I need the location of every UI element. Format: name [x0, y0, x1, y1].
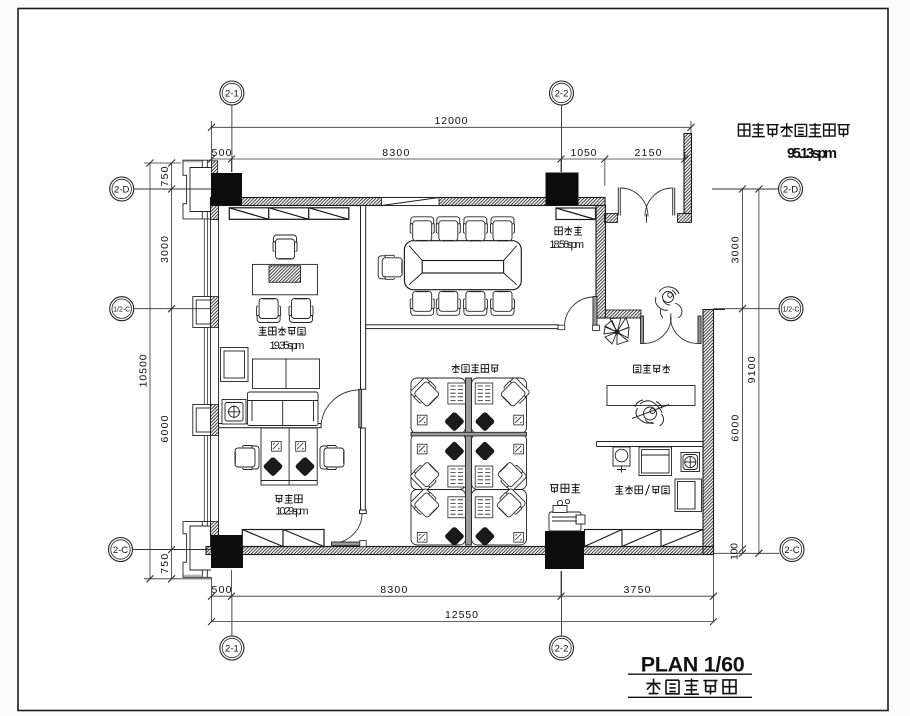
svg-text:9100: 9100: [746, 356, 758, 383]
svg-text:1/2-C: 1/2-C: [113, 307, 130, 314]
svg-text:2-C: 2-C: [784, 545, 799, 556]
svg-text:750: 750: [159, 166, 171, 186]
svg-text:3750: 3750: [624, 584, 651, 596]
svg-text:PLAN 1/60: PLAN 1/60: [641, 653, 745, 677]
svg-text:95.13spm: 95.13spm: [787, 146, 837, 162]
svg-text:8300: 8300: [382, 147, 409, 159]
svg-text:500: 500: [212, 584, 232, 596]
svg-text:2-1: 2-1: [225, 643, 239, 654]
svg-text:2-D: 2-D: [114, 184, 129, 195]
svg-text:19.35spm: 19.35spm: [270, 340, 305, 352]
svg-text:18.56spm: 18.56spm: [549, 239, 584, 251]
svg-text:1/2-C: 1/2-C: [782, 307, 799, 314]
svg-text:10500: 10500: [137, 354, 149, 387]
svg-text:12000: 12000: [435, 115, 468, 127]
svg-text:1050: 1050: [571, 147, 597, 159]
svg-text:3000: 3000: [730, 236, 742, 263]
svg-text:2-2: 2-2: [555, 643, 569, 654]
svg-text:2-C: 2-C: [113, 545, 128, 556]
svg-text:2-D: 2-D: [783, 184, 798, 195]
svg-text:2-2: 2-2: [555, 88, 569, 99]
svg-text:8300: 8300: [380, 584, 407, 596]
svg-text:100: 100: [729, 543, 741, 560]
svg-text:6000: 6000: [730, 414, 742, 441]
svg-text:3000: 3000: [159, 236, 171, 263]
svg-text:12550: 12550: [445, 609, 478, 621]
svg-text:2150: 2150: [635, 147, 662, 159]
svg-text:500: 500: [212, 147, 232, 159]
svg-text:750: 750: [159, 554, 171, 574]
svg-text:6000: 6000: [159, 415, 171, 442]
svg-text:2-1: 2-1: [225, 88, 239, 99]
svg-text:10.29spm: 10.29spm: [276, 506, 309, 518]
